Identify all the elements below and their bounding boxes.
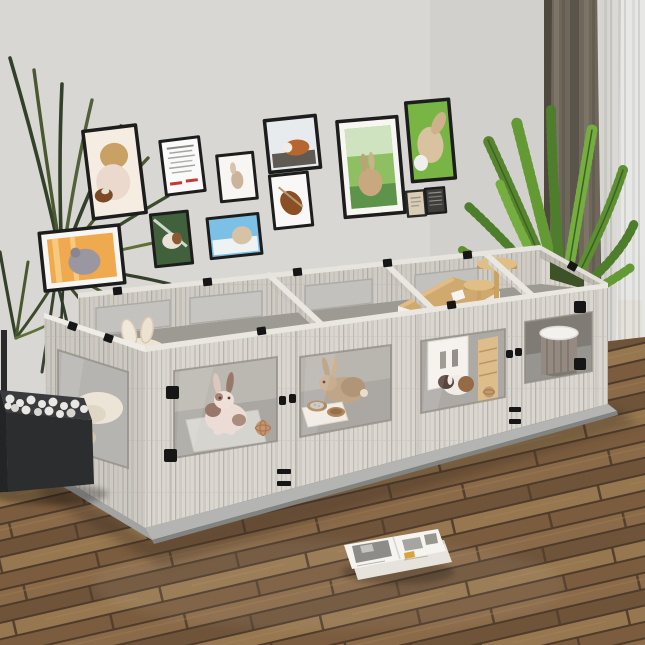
hinge-bar	[509, 407, 521, 412]
hinge-bar	[277, 481, 291, 486]
pebble	[34, 408, 42, 416]
frame-guineapig-window	[264, 115, 320, 172]
top-clip	[383, 258, 393, 267]
pebble	[5, 403, 12, 410]
door-latch	[574, 358, 586, 370]
room-photo	[0, 0, 645, 645]
top-clip	[463, 250, 473, 259]
plant-stick	[1, 330, 7, 394]
top-clip	[293, 267, 303, 276]
tree-platform	[464, 280, 495, 291]
frame-rabbit-grass	[337, 117, 405, 218]
door-latch	[166, 386, 179, 399]
pebble	[22, 406, 31, 415]
door-latch	[164, 449, 177, 462]
top-clip	[203, 277, 213, 286]
frame-rabbit-closeup	[406, 99, 456, 181]
door-latch	[574, 301, 586, 313]
scene	[0, 0, 645, 645]
hinge-knob	[506, 350, 513, 358]
pebble	[80, 405, 88, 413]
pebble	[67, 409, 76, 418]
pebble	[11, 404, 19, 412]
hinge-knob	[289, 394, 296, 403]
frame	[406, 190, 426, 216]
frame-brown-guineapig	[269, 172, 312, 229]
pebble	[60, 402, 68, 410]
hinge-knob	[279, 396, 286, 405]
hinge-knob	[515, 348, 522, 356]
frame	[160, 137, 205, 195]
pebble	[56, 410, 64, 418]
pebble	[49, 398, 58, 407]
hinge-bar	[509, 419, 521, 424]
frame-rabbit-print	[217, 152, 258, 202]
frame-child-guinea-pig	[83, 125, 146, 219]
photo-detail	[345, 125, 393, 157]
frame-small-beige	[406, 190, 426, 216]
pebble	[27, 396, 36, 405]
frame-chinchilla-orange	[39, 225, 125, 291]
page-photo	[424, 533, 438, 545]
pebble	[45, 407, 54, 416]
pebble	[38, 400, 46, 408]
top-clip	[113, 286, 123, 295]
hinge-bar	[277, 469, 291, 474]
pebble	[71, 400, 80, 409]
top-clip	[256, 326, 266, 335]
frame-small-dark	[425, 187, 446, 214]
frame-certificate	[160, 137, 205, 195]
frame-guineapig-green	[150, 211, 192, 267]
top-clip	[446, 300, 456, 309]
pebble	[6, 395, 15, 404]
frame-chinchilla-blue	[207, 213, 262, 258]
planter-front	[6, 412, 94, 492]
